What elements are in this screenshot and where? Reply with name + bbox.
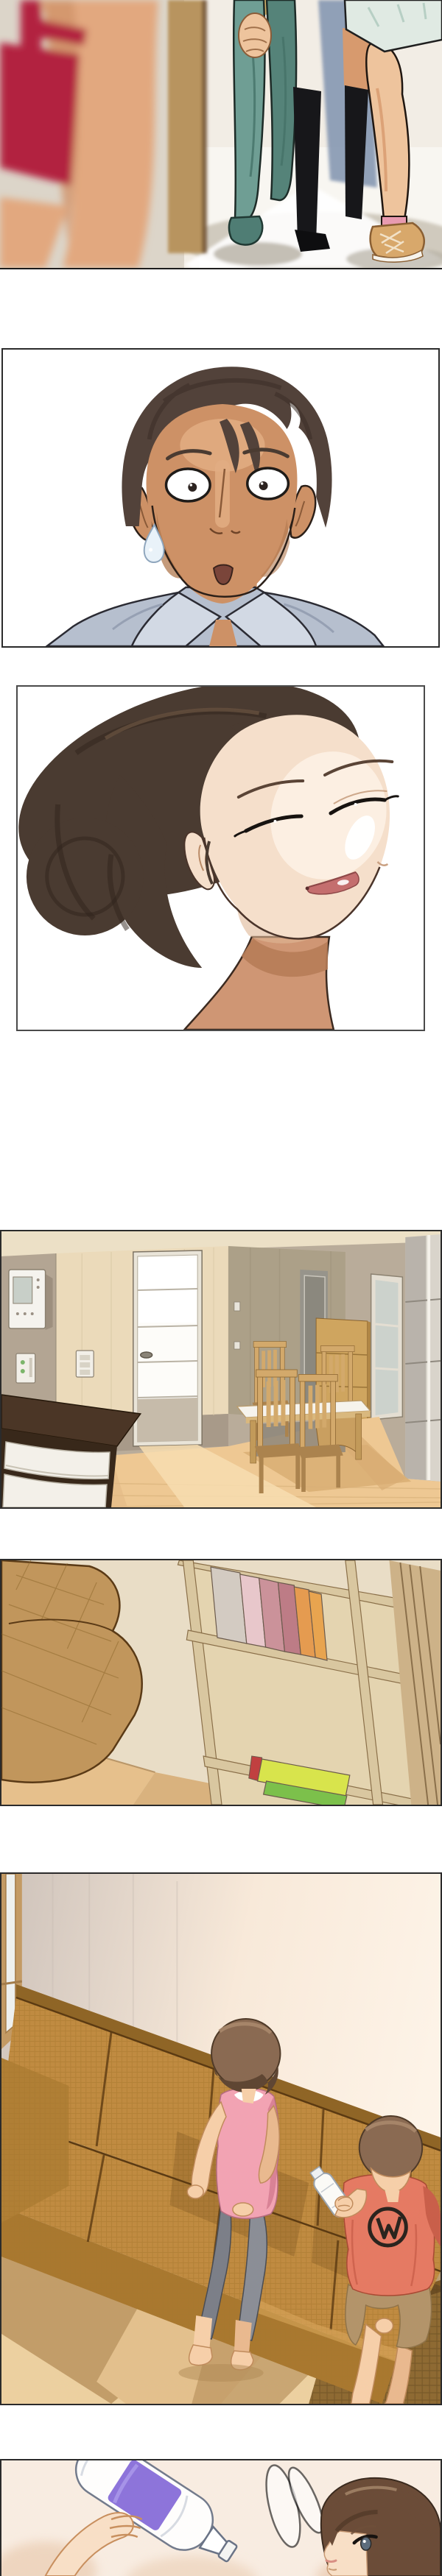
webtoon-page xyxy=(0,0,442,2576)
panel-2-surprised-man xyxy=(1,348,440,648)
panel-1-doorway-scene xyxy=(0,0,442,269)
door-frame xyxy=(168,0,207,253)
switch-plate xyxy=(76,1351,94,1377)
panel-6-sofa-scene xyxy=(0,1872,442,2405)
clasped-hands xyxy=(239,13,271,57)
wall-intercom xyxy=(9,1270,53,1330)
light-switch xyxy=(16,1354,35,1383)
white-door xyxy=(133,1250,202,1446)
balcony-door xyxy=(371,1274,403,1420)
white-shelving xyxy=(405,1234,441,1482)
teal-flat-shoe xyxy=(229,216,262,245)
lips xyxy=(326,2561,336,2562)
hair-bun xyxy=(27,818,144,935)
foreground-woman-red-top xyxy=(0,0,158,268)
panel-3-smiling-woman xyxy=(16,685,425,1031)
bare-foot xyxy=(189,2345,212,2366)
panel-7-bottle-girl xyxy=(0,2459,442,2576)
panel-5-bookshelf-tilted xyxy=(0,1559,442,1806)
panel-4-apartment-interior xyxy=(0,1230,442,1509)
